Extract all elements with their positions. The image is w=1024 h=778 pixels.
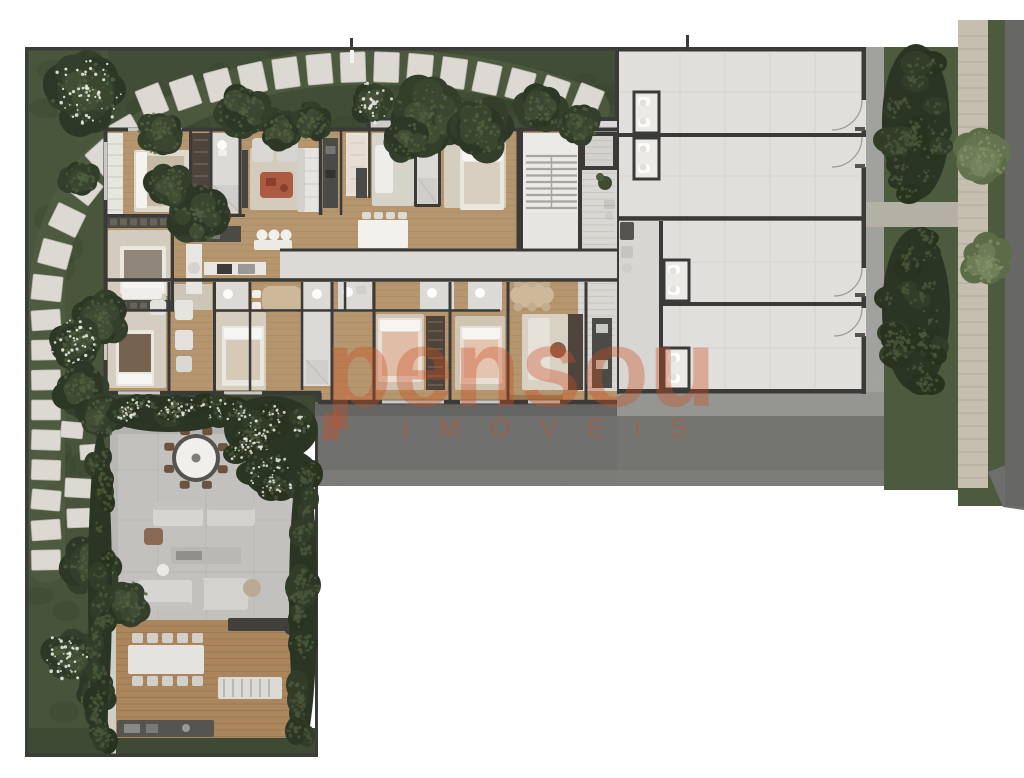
svg-text:pensou: pensou [325,307,716,430]
